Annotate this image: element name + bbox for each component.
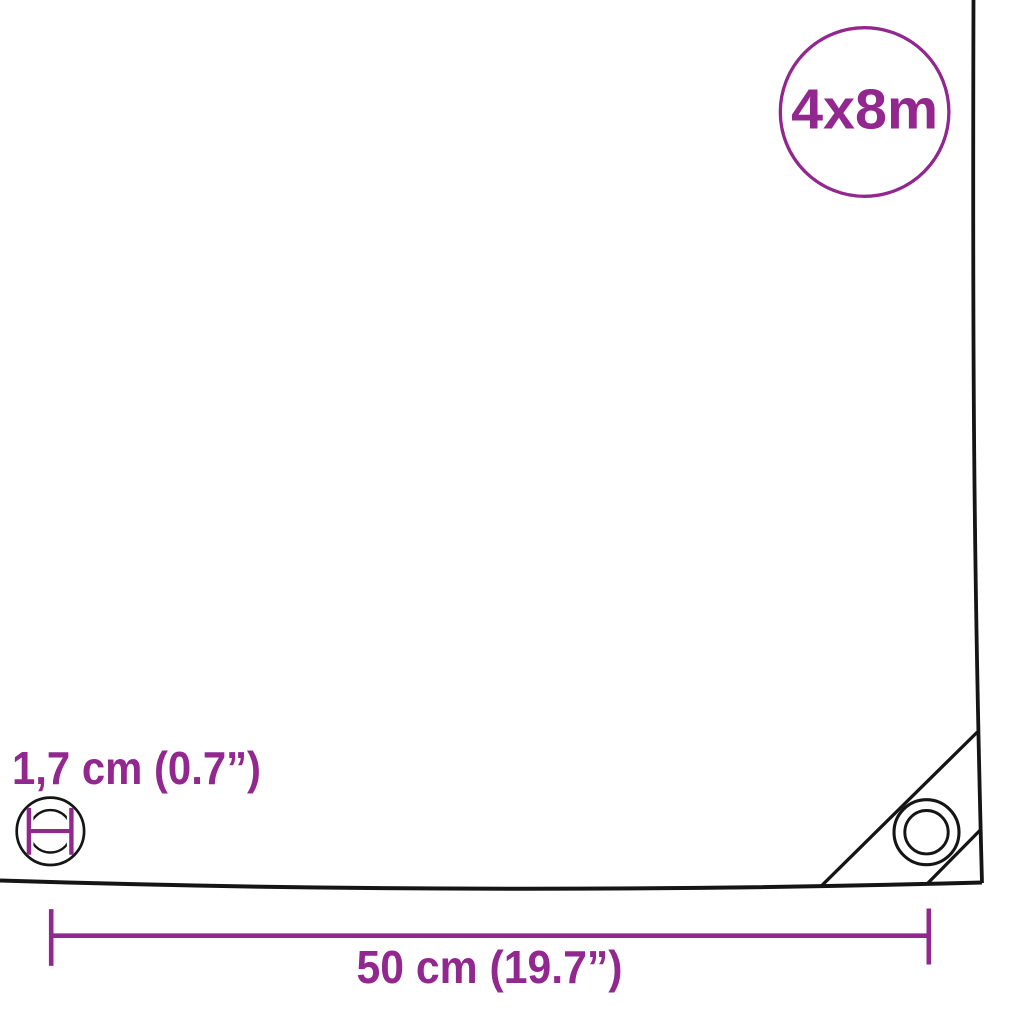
svg-text:4x8m: 4x8m: [791, 79, 938, 142]
svg-text:50 cm (19.7”): 50 cm (19.7”): [357, 941, 623, 993]
svg-text:1,7 cm (0.7”): 1,7 cm (0.7”): [12, 742, 261, 794]
